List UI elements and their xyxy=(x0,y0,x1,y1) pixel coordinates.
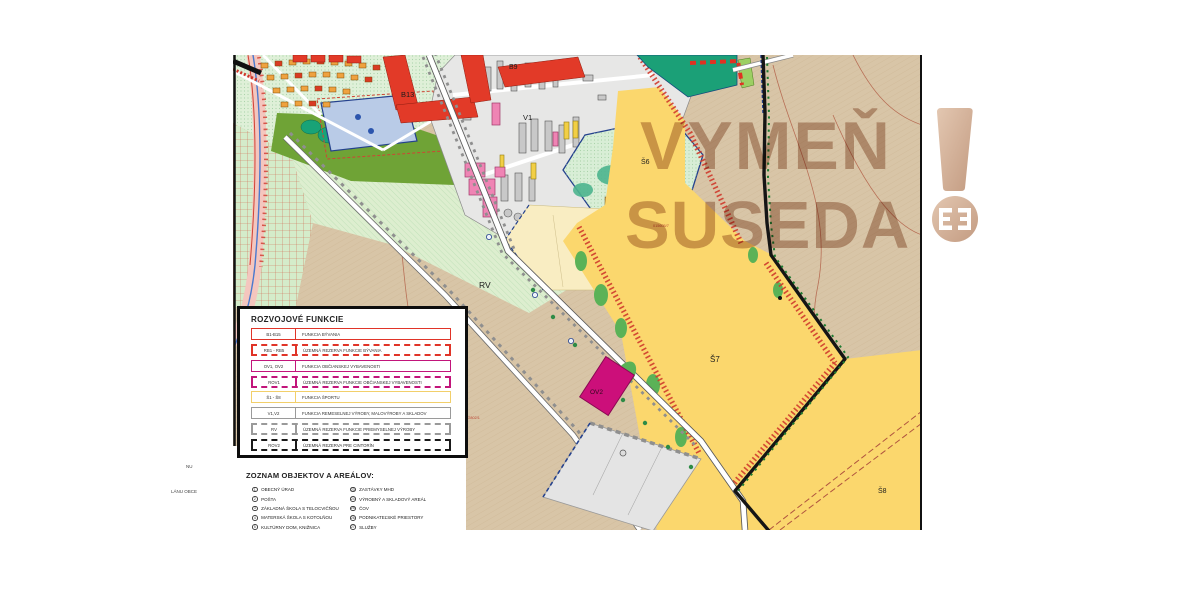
label-ov2: OV2 xyxy=(590,389,603,396)
legend-code: ROV1 xyxy=(253,378,297,386)
label-b13: B13 xyxy=(401,90,414,99)
object-list-title: ZOZNAM OBJEKTOV A AREÁLOV: xyxy=(246,471,462,480)
item-label: ZASTÁVKY MHD xyxy=(359,487,394,492)
legend-label: FUNKCIA OBČIANSKEJ VYBAVENOSTI xyxy=(296,361,450,371)
object-list-left-column: 1 OBECNÝ ÚRAD 2 POŠTA 3 ZÁKLADNÁ ŠKOLA S… xyxy=(252,485,339,530)
list-item: 24 VÝROBNÝ A SKLADOVÝ AREÁL xyxy=(350,494,426,503)
legend-code: ROV2 xyxy=(253,441,297,449)
list-item: 3 ZÁKLADNÁ ŠKOLA S TELOCVIČŇOU xyxy=(252,504,339,513)
legend-row-industry: V1,V2 FUNKCIA REMESELNEJ VÝROBY, MALOVÝR… xyxy=(251,407,451,419)
page: { "watermark": { "line1": "VYMEŇ", "line… xyxy=(0,0,1200,590)
list-item: 5 KULTÚRNY DOM, KNIŽNICA xyxy=(252,523,339,530)
legend-code: B1-B15 xyxy=(252,329,296,339)
legend-code: RV xyxy=(253,425,297,433)
exclamation-logo xyxy=(925,98,987,250)
item-label: MATERSKÁ ŠKOLA S KOTOLŇOU xyxy=(261,515,332,520)
legend-label: ÚZEMNÁ REZERVA FUNKCIE PRIEMYSELNEJ VÝRO… xyxy=(297,425,449,433)
legend-row-cemetery-reserve: ROV2 ÚZEMNÁ REZERVA PRE CINTORÍN xyxy=(251,439,451,451)
object-list: ZOZNAM OBJEKTOV A AREÁLOV: 1 OBECNÝ ÚRAD… xyxy=(246,471,462,530)
label-s8: Š8 xyxy=(878,486,887,495)
legend-code: RB1 - RB5 xyxy=(253,346,297,354)
legend-label: FUNKCIA REMESELNEJ VÝROBY, MALOVÝROBY A … xyxy=(296,408,450,418)
legend-row-housing: B1-B15 FUNKCIA BÝVANIA xyxy=(251,328,451,340)
legend-row-housing-reserve: RB1 - RB5 ÚZEMNÁ REZERVA FUNKCIE BÝVANIA xyxy=(251,344,451,356)
label-b9: B9 xyxy=(509,64,518,71)
item-label: VÝROBNÝ A SKLADOVÝ AREÁL xyxy=(359,497,426,502)
legend-label: FUNKCIA ŠPORTU xyxy=(296,392,450,402)
list-item: 26 PODNIKATEĽSKÉ PRIESTORY xyxy=(350,513,426,522)
legend-title: ROZVOJOVÉ FUNKCIE xyxy=(251,315,344,324)
item-number-badge: 2 xyxy=(252,496,258,502)
item-label: PODNIKATEĽSKÉ PRIESTORY xyxy=(359,515,423,520)
item-label: ČOV xyxy=(359,506,369,511)
label-rv: RV xyxy=(479,280,491,290)
exclamation-bar xyxy=(937,108,973,191)
label-v1: V1 xyxy=(523,113,532,122)
legend-code: Š1 - Š8 xyxy=(252,392,296,402)
list-item: 1 OBECNÝ ÚRAD xyxy=(252,485,339,494)
item-label: SLUŽBY xyxy=(359,525,377,530)
object-list-right-column: 23 ZASTÁVKY MHD 24 VÝROBNÝ A SKLADOVÝ AR… xyxy=(350,485,426,530)
legend-code: V1,V2 xyxy=(252,408,296,418)
legend-row-civic-reserve: ROV1 ÚZEMNÁ REZERVA FUNKCIE OBČIANSKEJ V… xyxy=(251,376,451,388)
legend-code: OV1, OV2 xyxy=(252,361,296,371)
item-number-badge: 1 xyxy=(252,487,258,493)
list-item: 2 POŠTA xyxy=(252,494,339,503)
legend-row-sport: Š1 - Š8 FUNKCIA ŠPORTU xyxy=(251,391,451,403)
item-number-badge: 25 xyxy=(350,506,356,512)
item-number-badge: 3 xyxy=(252,506,258,512)
item-label: KULTÚRNY DOM, KNIŽNICA xyxy=(261,525,320,530)
legend-label: FUNKCIA BÝVANIA xyxy=(296,329,450,339)
edge-fragment-1: NU xyxy=(186,464,193,469)
list-item: 23 ZASTÁVKY MHD xyxy=(350,485,426,494)
legend-row-civic: OV1, OV2 FUNKCIA OBČIANSKEJ VYBAVENOSTI xyxy=(251,360,451,372)
exchange-icon xyxy=(932,196,978,242)
watermark-line1: VYMEŇ xyxy=(640,112,892,180)
item-label: POŠTA xyxy=(261,497,276,502)
item-label: OBECNÝ ÚRAD xyxy=(261,487,294,492)
item-number-badge: 24 xyxy=(350,496,356,502)
legend-row-industry-reserve: RV ÚZEMNÁ REZERVA FUNKCIE PRIEMYSELNEJ V… xyxy=(251,423,451,435)
legend-panel: ROZVOJOVÉ FUNKCIE B1-B15 FUNKCIA BÝVANIA… xyxy=(237,306,468,458)
list-item: 27 SLUŽBY xyxy=(350,523,426,530)
label-s7: Š7 xyxy=(710,355,720,364)
legend-label: ÚZEMNÁ REZERVA FUNKCIE BÝVANIA xyxy=(297,346,449,354)
item-number-badge: 23 xyxy=(350,487,356,493)
item-label: ZÁKLADNÁ ŠKOLA S TELOCVIČŇOU xyxy=(261,506,339,511)
item-number-badge: 26 xyxy=(350,515,356,521)
list-item: 25 ČOV xyxy=(350,504,426,513)
watermark-line2: SUSEDA xyxy=(625,192,910,259)
legend-label: ÚZEMNÁ REZERVA FUNKCIE OBČIANSKEJ VYBAVE… xyxy=(297,378,449,386)
edge-fragment-2: LÁNU OBCE xyxy=(171,489,197,494)
item-number-badge: 4 xyxy=(252,515,258,521)
list-item: 4 MATERSKÁ ŠKOLA S KOTOLŇOU xyxy=(252,513,339,522)
legend-label: ÚZEMNÁ REZERVA PRE CINTORÍN xyxy=(297,441,449,449)
item-number-badge: 5 xyxy=(252,524,258,530)
item-number-badge: 27 xyxy=(350,524,356,530)
